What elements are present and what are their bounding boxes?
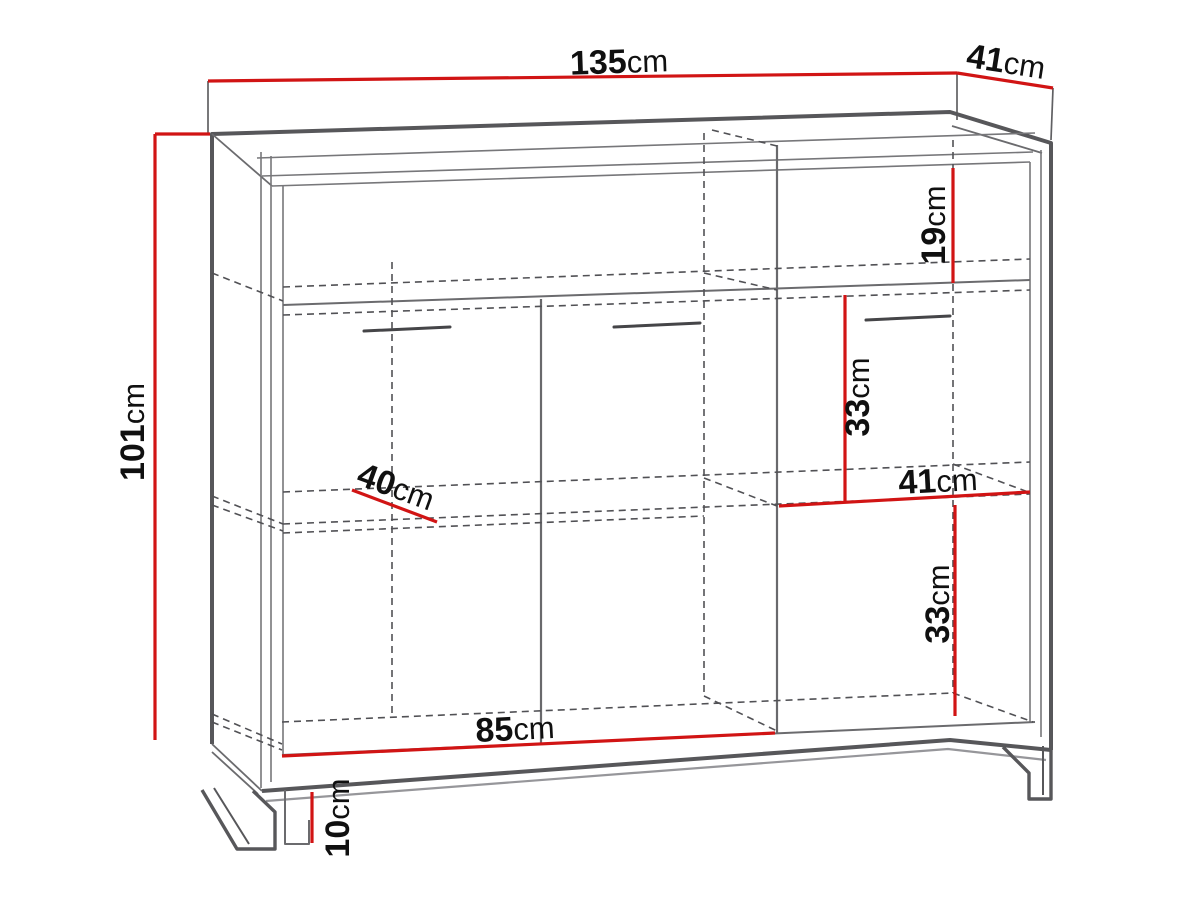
handle-right-door bbox=[866, 316, 950, 320]
hidden-edges bbox=[212, 130, 1033, 750]
handle-middle-door bbox=[614, 323, 700, 327]
label-inner-depth: 41cm bbox=[897, 460, 978, 502]
label-leg-height: 10cm bbox=[319, 778, 357, 857]
label-height: 101cm bbox=[114, 383, 152, 481]
carcass-bottom bbox=[262, 740, 1051, 791]
dimension-labels: 135cm 41cm 101cm 19cm 33cm 41cm 33cm 85c… bbox=[114, 37, 1048, 858]
top-shelf-front-edge bbox=[283, 280, 1030, 305]
label-depth: 41cm bbox=[964, 37, 1048, 87]
label-upper-section: 33cm bbox=[839, 357, 877, 436]
label-shelf-depth: 40cm bbox=[352, 456, 439, 519]
handle-left-door bbox=[364, 327, 450, 331]
door-handles bbox=[364, 316, 950, 331]
diagram-canvas: 135cm 41cm 101cm 19cm 33cm 41cm 33cm 85c… bbox=[0, 0, 1200, 900]
label-top-shelf: 19cm bbox=[915, 185, 953, 264]
furniture-dimension-diagram: 135cm 41cm 101cm 19cm 33cm 41cm 33cm 85c… bbox=[0, 0, 1200, 900]
front-left-leg bbox=[202, 790, 275, 849]
label-inner-width: 85cm bbox=[474, 708, 555, 750]
label-width: 135cm bbox=[569, 41, 668, 82]
label-lower-section: 33cm bbox=[919, 564, 957, 643]
base-shadow-line bbox=[266, 749, 1046, 801]
